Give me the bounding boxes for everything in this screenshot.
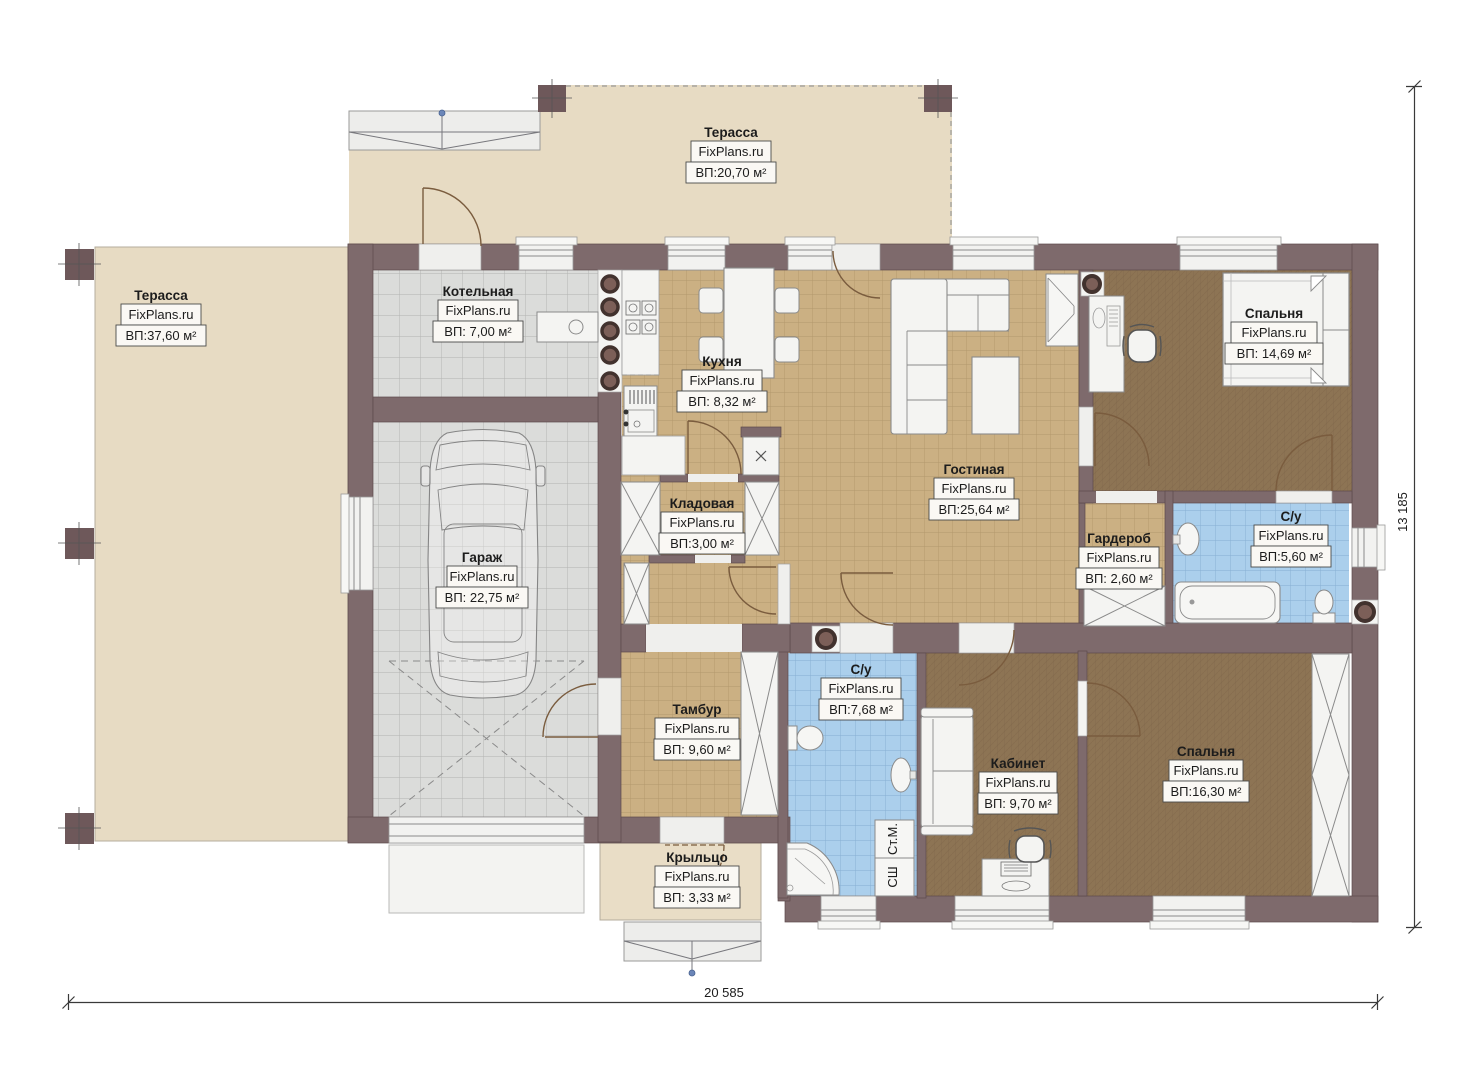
svg-text:ВП:37,60 м²: ВП:37,60 м² — [125, 328, 197, 343]
svg-text:Тамбур: Тамбур — [673, 702, 722, 717]
svg-text:20 585: 20 585 — [704, 985, 744, 1000]
svg-text:ВП:3,00 м²: ВП:3,00 м² — [670, 536, 734, 551]
svg-text:FixPlans.ru: FixPlans.ru — [941, 481, 1006, 496]
svg-text:Кабинет: Кабинет — [991, 756, 1046, 771]
svg-text:Кухня: Кухня — [702, 354, 741, 369]
svg-text:ВП:25,64 м²: ВП:25,64 м² — [938, 502, 1010, 517]
svg-text:Гардероб: Гардероб — [1087, 531, 1151, 546]
svg-text:FixPlans.ru: FixPlans.ru — [128, 307, 193, 322]
svg-text:ВП: 7,00 м²: ВП: 7,00 м² — [444, 324, 512, 339]
svg-text:ВП: 22,75 м²: ВП: 22,75 м² — [445, 590, 520, 605]
svg-text:ВП:5,60 м²: ВП:5,60 м² — [1259, 549, 1323, 564]
svg-text:ВП: 9,60 м²: ВП: 9,60 м² — [663, 742, 731, 757]
svg-text:Терасса: Терасса — [704, 125, 758, 140]
svg-text:FixPlans.ru: FixPlans.ru — [689, 373, 754, 388]
svg-text:Ст.М.: Ст.М. — [885, 823, 900, 855]
svg-text:FixPlans.ru: FixPlans.ru — [1086, 550, 1151, 565]
svg-text:СШ: СШ — [885, 866, 900, 887]
svg-text:FixPlans.ru: FixPlans.ru — [1241, 325, 1306, 340]
svg-text:С/у: С/у — [1280, 509, 1302, 524]
svg-text:13 185: 13 185 — [1395, 492, 1410, 532]
svg-text:FixPlans.ru: FixPlans.ru — [828, 681, 893, 696]
svg-text:ВП: 3,33 м²: ВП: 3,33 м² — [663, 890, 731, 905]
svg-text:ВП:7,68 м²: ВП:7,68 м² — [829, 702, 893, 717]
svg-text:FixPlans.ru: FixPlans.ru — [664, 721, 729, 736]
svg-text:FixPlans.ru: FixPlans.ru — [664, 869, 729, 884]
svg-text:FixPlans.ru: FixPlans.ru — [1258, 528, 1323, 543]
svg-text:ВП:20,70 м²: ВП:20,70 м² — [695, 165, 767, 180]
svg-text:FixPlans.ru: FixPlans.ru — [449, 569, 514, 584]
svg-text:ВП:16,30 м²: ВП:16,30 м² — [1170, 784, 1242, 799]
svg-text:Гараж: Гараж — [462, 550, 503, 565]
svg-text:Спальня: Спальня — [1245, 306, 1303, 321]
svg-text:Терасса: Терасса — [134, 288, 188, 303]
svg-text:С/у: С/у — [850, 662, 872, 677]
svg-text:FixPlans.ru: FixPlans.ru — [445, 303, 510, 318]
svg-text:Спальня: Спальня — [1177, 744, 1235, 759]
svg-text:ВП: 8,32 м²: ВП: 8,32 м² — [688, 394, 756, 409]
svg-text:Гостиная: Гостиная — [943, 462, 1004, 477]
svg-text:ВП: 14,69 м²: ВП: 14,69 м² — [1237, 346, 1312, 361]
svg-text:ВП: 9,70 м²: ВП: 9,70 м² — [984, 796, 1052, 811]
svg-text:FixPlans.ru: FixPlans.ru — [1173, 763, 1238, 778]
svg-text:Крыльцо: Крыльцо — [666, 850, 727, 865]
svg-text:FixPlans.ru: FixPlans.ru — [669, 515, 734, 530]
svg-text:ВП: 2,60 м²: ВП: 2,60 м² — [1085, 571, 1153, 586]
svg-text:Кладовая: Кладовая — [670, 496, 735, 511]
svg-text:FixPlans.ru: FixPlans.ru — [985, 775, 1050, 790]
svg-text:FixPlans.ru: FixPlans.ru — [698, 144, 763, 159]
svg-text:Котельная: Котельная — [443, 284, 514, 299]
